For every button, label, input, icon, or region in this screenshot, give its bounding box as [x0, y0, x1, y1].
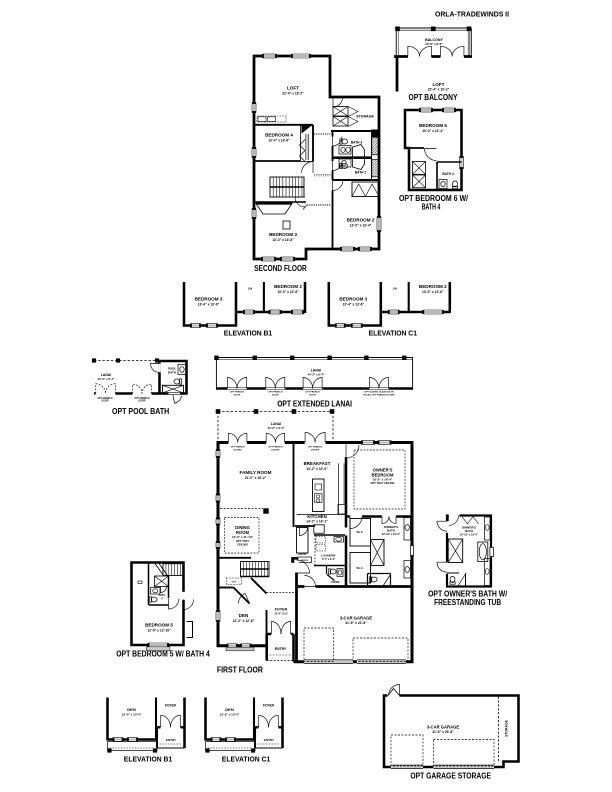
svg-text:IN LIEU OPT FRENCH DOORS: IN LIEU OPT FRENCH DOORS — [363, 394, 395, 396]
svg-text:LOFT: LOFT — [433, 82, 445, 87]
svg-text:BEDROOM 3: BEDROOM 3 — [339, 297, 367, 302]
svg-text:BEDROOM 2: BEDROOM 2 — [419, 284, 447, 289]
svg-text:BEDROOM 5: BEDROOM 5 — [145, 623, 173, 628]
svg-text:ELEVATION B1: ELEVATION B1 — [224, 329, 272, 338]
svg-text:OPT FRENCH: OPT FRENCH — [231, 447, 246, 449]
svg-text:LIN: LIN — [248, 287, 252, 291]
svg-text:OPT BALCONY: OPT BALCONY — [409, 93, 459, 102]
svg-text:14'-2" x 14'-1": 14'-2" x 14'-1" — [306, 520, 328, 524]
svg-text:FOYER: FOYER — [275, 608, 288, 612]
svg-text:DEN: DEN — [225, 707, 234, 712]
svg-text:ENTRY: ENTRY — [275, 647, 287, 651]
svg-text:DOOR: DOOR — [309, 394, 316, 396]
svg-text:22'-0" x 8'-4": 22'-0" x 8'-4" — [268, 426, 285, 430]
svg-text:DOOR: DOOR — [139, 401, 146, 403]
svg-text:OPT TRAY CEILING: OPT TRAY CEILING — [370, 481, 394, 485]
svg-text:ENTRY: ENTRY — [166, 738, 176, 742]
svg-text:LIN: LIN — [393, 287, 397, 291]
svg-text:CEILING: CEILING — [237, 543, 248, 547]
svg-text:13'-4" x 13'-6": 13'-4" x 13'-6" — [268, 139, 290, 143]
svg-text:FOYER: FOYER — [165, 704, 177, 708]
svg-text:10'-0" x 12'-4": 10'-0" x 12'-4" — [422, 129, 444, 133]
svg-text:22'-4" x 19'-2": 22'-4" x 19'-2" — [282, 92, 304, 96]
svg-text:STORAGE: STORAGE — [356, 115, 374, 119]
svg-text:LOFT: LOFT — [287, 86, 299, 91]
svg-text:12'-10" x 10'-0": 12'-10" x 10'-0" — [460, 533, 479, 537]
svg-text:ELEVATION C1: ELEVATION C1 — [222, 755, 270, 764]
svg-text:BEDROOM 6: BEDROOM 6 — [419, 123, 447, 128]
svg-text:12'-2" x 12'-6": 12'-2" x 12'-6" — [233, 619, 255, 623]
svg-text:KITCHEN: KITCHEN — [307, 514, 327, 519]
svg-text:FAMILY ROOM: FAMILY ROOM — [240, 470, 272, 475]
svg-text:DOOR: DOOR — [272, 394, 279, 396]
svg-text:12'-10" x 10'-0": 12'-10" x 10'-0" — [382, 532, 401, 536]
svg-text:DOORS: DOORS — [234, 449, 243, 451]
svg-text:OPT SLIDING GLASS DOOR: OPT SLIDING GLASS DOOR — [364, 391, 394, 394]
svg-text:6'-7" x 9'-2": 6'-7" x 9'-2" — [322, 558, 335, 561]
svg-text:OPT FRENCH: OPT FRENCH — [135, 398, 150, 400]
svg-text:22'-4" x 19'-2": 22'-4" x 19'-2" — [428, 88, 450, 92]
svg-text:3-CAR GARAGE: 3-CAR GARAGE — [340, 616, 373, 621]
svg-text:BEDROOM 3: BEDROOM 3 — [269, 232, 297, 237]
svg-text:ELEVATION C1: ELEVATION C1 — [369, 329, 417, 338]
svg-text:W.I.C.: W.I.C. — [356, 566, 363, 570]
svg-text:DOORS: DOORS — [311, 449, 320, 451]
svg-text:12'-0" CLG: 12'-0" CLG — [274, 611, 287, 615]
svg-text:DEN: DEN — [239, 613, 249, 618]
svg-text:13'-4" x 13'-6": 13'-4" x 13'-6" — [343, 303, 365, 307]
svg-text:14'-2" x 10'-0": 14'-2" x 10'-0" — [306, 467, 328, 471]
svg-text:12'-0" x 12'-10": 12'-0" x 12'-10" — [147, 629, 171, 633]
svg-text:31'-6" x 22'-8": 31'-6" x 22'-8" — [345, 621, 367, 625]
svg-text:DOOR: DOOR — [102, 401, 109, 403]
svg-text:BATH 4: BATH 4 — [442, 172, 454, 176]
svg-text:PWDR: PWDR — [332, 580, 340, 584]
svg-text:BATH 2: BATH 2 — [355, 171, 367, 175]
svg-text:FREESTANDING TUB: FREESTANDING TUB — [434, 598, 501, 607]
svg-text:BEDROOM 4: BEDROOM 4 — [265, 133, 293, 138]
svg-text:44'-2" x 8'-4": 44'-2" x 8'-4" — [308, 373, 325, 377]
svg-text:OPT FRENCH: OPT FRENCH — [305, 392, 320, 394]
svg-text:OPT TRAY: OPT TRAY — [236, 539, 250, 543]
svg-text:3-CAR GARAGE: 3-CAR GARAGE — [427, 725, 460, 730]
svg-text:BATH 3: BATH 3 — [351, 141, 363, 145]
svg-text:OPT FRENCH: OPT FRENCH — [268, 447, 283, 449]
svg-text:13'-4" x 13'-8": 13'-4" x 13'-8" — [272, 238, 294, 242]
svg-text:13'-0" x 13'-6": 13'-0" x 13'-6" — [422, 290, 444, 294]
svg-text:OPT FRENCH: OPT FRENCH — [268, 392, 283, 394]
svg-text:W.I.C.: W.I.C. — [356, 530, 363, 534]
svg-text:STORAGE: STORAGE — [505, 719, 509, 736]
svg-text:FIRST FLOOR: FIRST FLOOR — [217, 665, 263, 674]
svg-text:FOYER: FOYER — [263, 704, 275, 708]
svg-text:DOOR: DOOR — [234, 394, 241, 396]
svg-text:OPT BEDROOM 5 W/ BATH 4: OPT BEDROOM 5 W/ BATH 4 — [116, 650, 210, 659]
svg-text:DEN: DEN — [127, 707, 136, 712]
svg-text:OPT GARAGE STORAGE: OPT GARAGE STORAGE — [410, 772, 491, 781]
svg-text:31'-6" x 25'-8": 31'-6" x 25'-8" — [432, 730, 454, 734]
svg-text:13'-0" x 10'-0": 13'-0" x 10'-0" — [122, 712, 142, 716]
svg-text:20'-0" x 8'-4": 20'-0" x 8'-4" — [98, 377, 115, 381]
svg-text:13'-0" x 13'-6": 13'-0" x 13'-6" — [277, 290, 299, 294]
svg-text:13'-0" x 10'-0": 13'-0" x 10'-0" — [220, 712, 240, 716]
svg-text:ENTRY: ENTRY — [264, 738, 274, 742]
svg-text:OPT FRENCH: OPT FRENCH — [98, 398, 113, 400]
svg-text:OPT FRENCH: OPT FRENCH — [230, 392, 245, 394]
svg-text:BATH: BATH — [168, 370, 176, 374]
svg-text:PANTRY: PANTRY — [298, 553, 307, 556]
svg-text:BATH 4: BATH 4 — [422, 202, 441, 211]
svg-text:OPT EXTENDED LANAI: OPT EXTENDED LANAI — [277, 399, 352, 408]
svg-text:BEDROOM 2: BEDROOM 2 — [347, 218, 375, 223]
svg-text:BEDROOM 2: BEDROOM 2 — [274, 284, 302, 289]
svg-text:OPT POOL BATH: OPT POOL BATH — [112, 407, 169, 416]
svg-text:SECOND FLOOR: SECOND FLOOR — [254, 264, 307, 273]
svg-text:ORLA-TRADEWINDS II: ORLA-TRADEWINDS II — [435, 10, 509, 19]
svg-text:BATH: BATH — [465, 529, 473, 533]
svg-text:13'-4" x 13'-6": 13'-4" x 13'-6" — [198, 303, 220, 307]
svg-text:ELEVATION B1: ELEVATION B1 — [124, 755, 172, 764]
svg-text:16'-2" x 16'-4": 16'-2" x 16'-4" — [373, 477, 393, 481]
svg-text:13'-2" x 11'-10": 13'-2" x 11'-10" — [232, 535, 254, 539]
svg-text:BREAKFAST: BREAKFAST — [304, 461, 331, 466]
svg-text:BEDROOM 3: BEDROOM 3 — [195, 297, 223, 302]
svg-text:12'-0" x 13'-4": 12'-0" x 13'-4" — [350, 224, 372, 228]
svg-text:21'-0" x 16'-2": 21'-0" x 16'-2" — [245, 476, 267, 480]
svg-text:20'-8" x 8'-8": 20'-8" x 8'-8" — [425, 42, 443, 46]
svg-text:BATH: BATH — [387, 529, 395, 533]
svg-text:DOORS: DOORS — [271, 449, 280, 451]
svg-text:OPT FRENCH: OPT FRENCH — [308, 447, 323, 449]
